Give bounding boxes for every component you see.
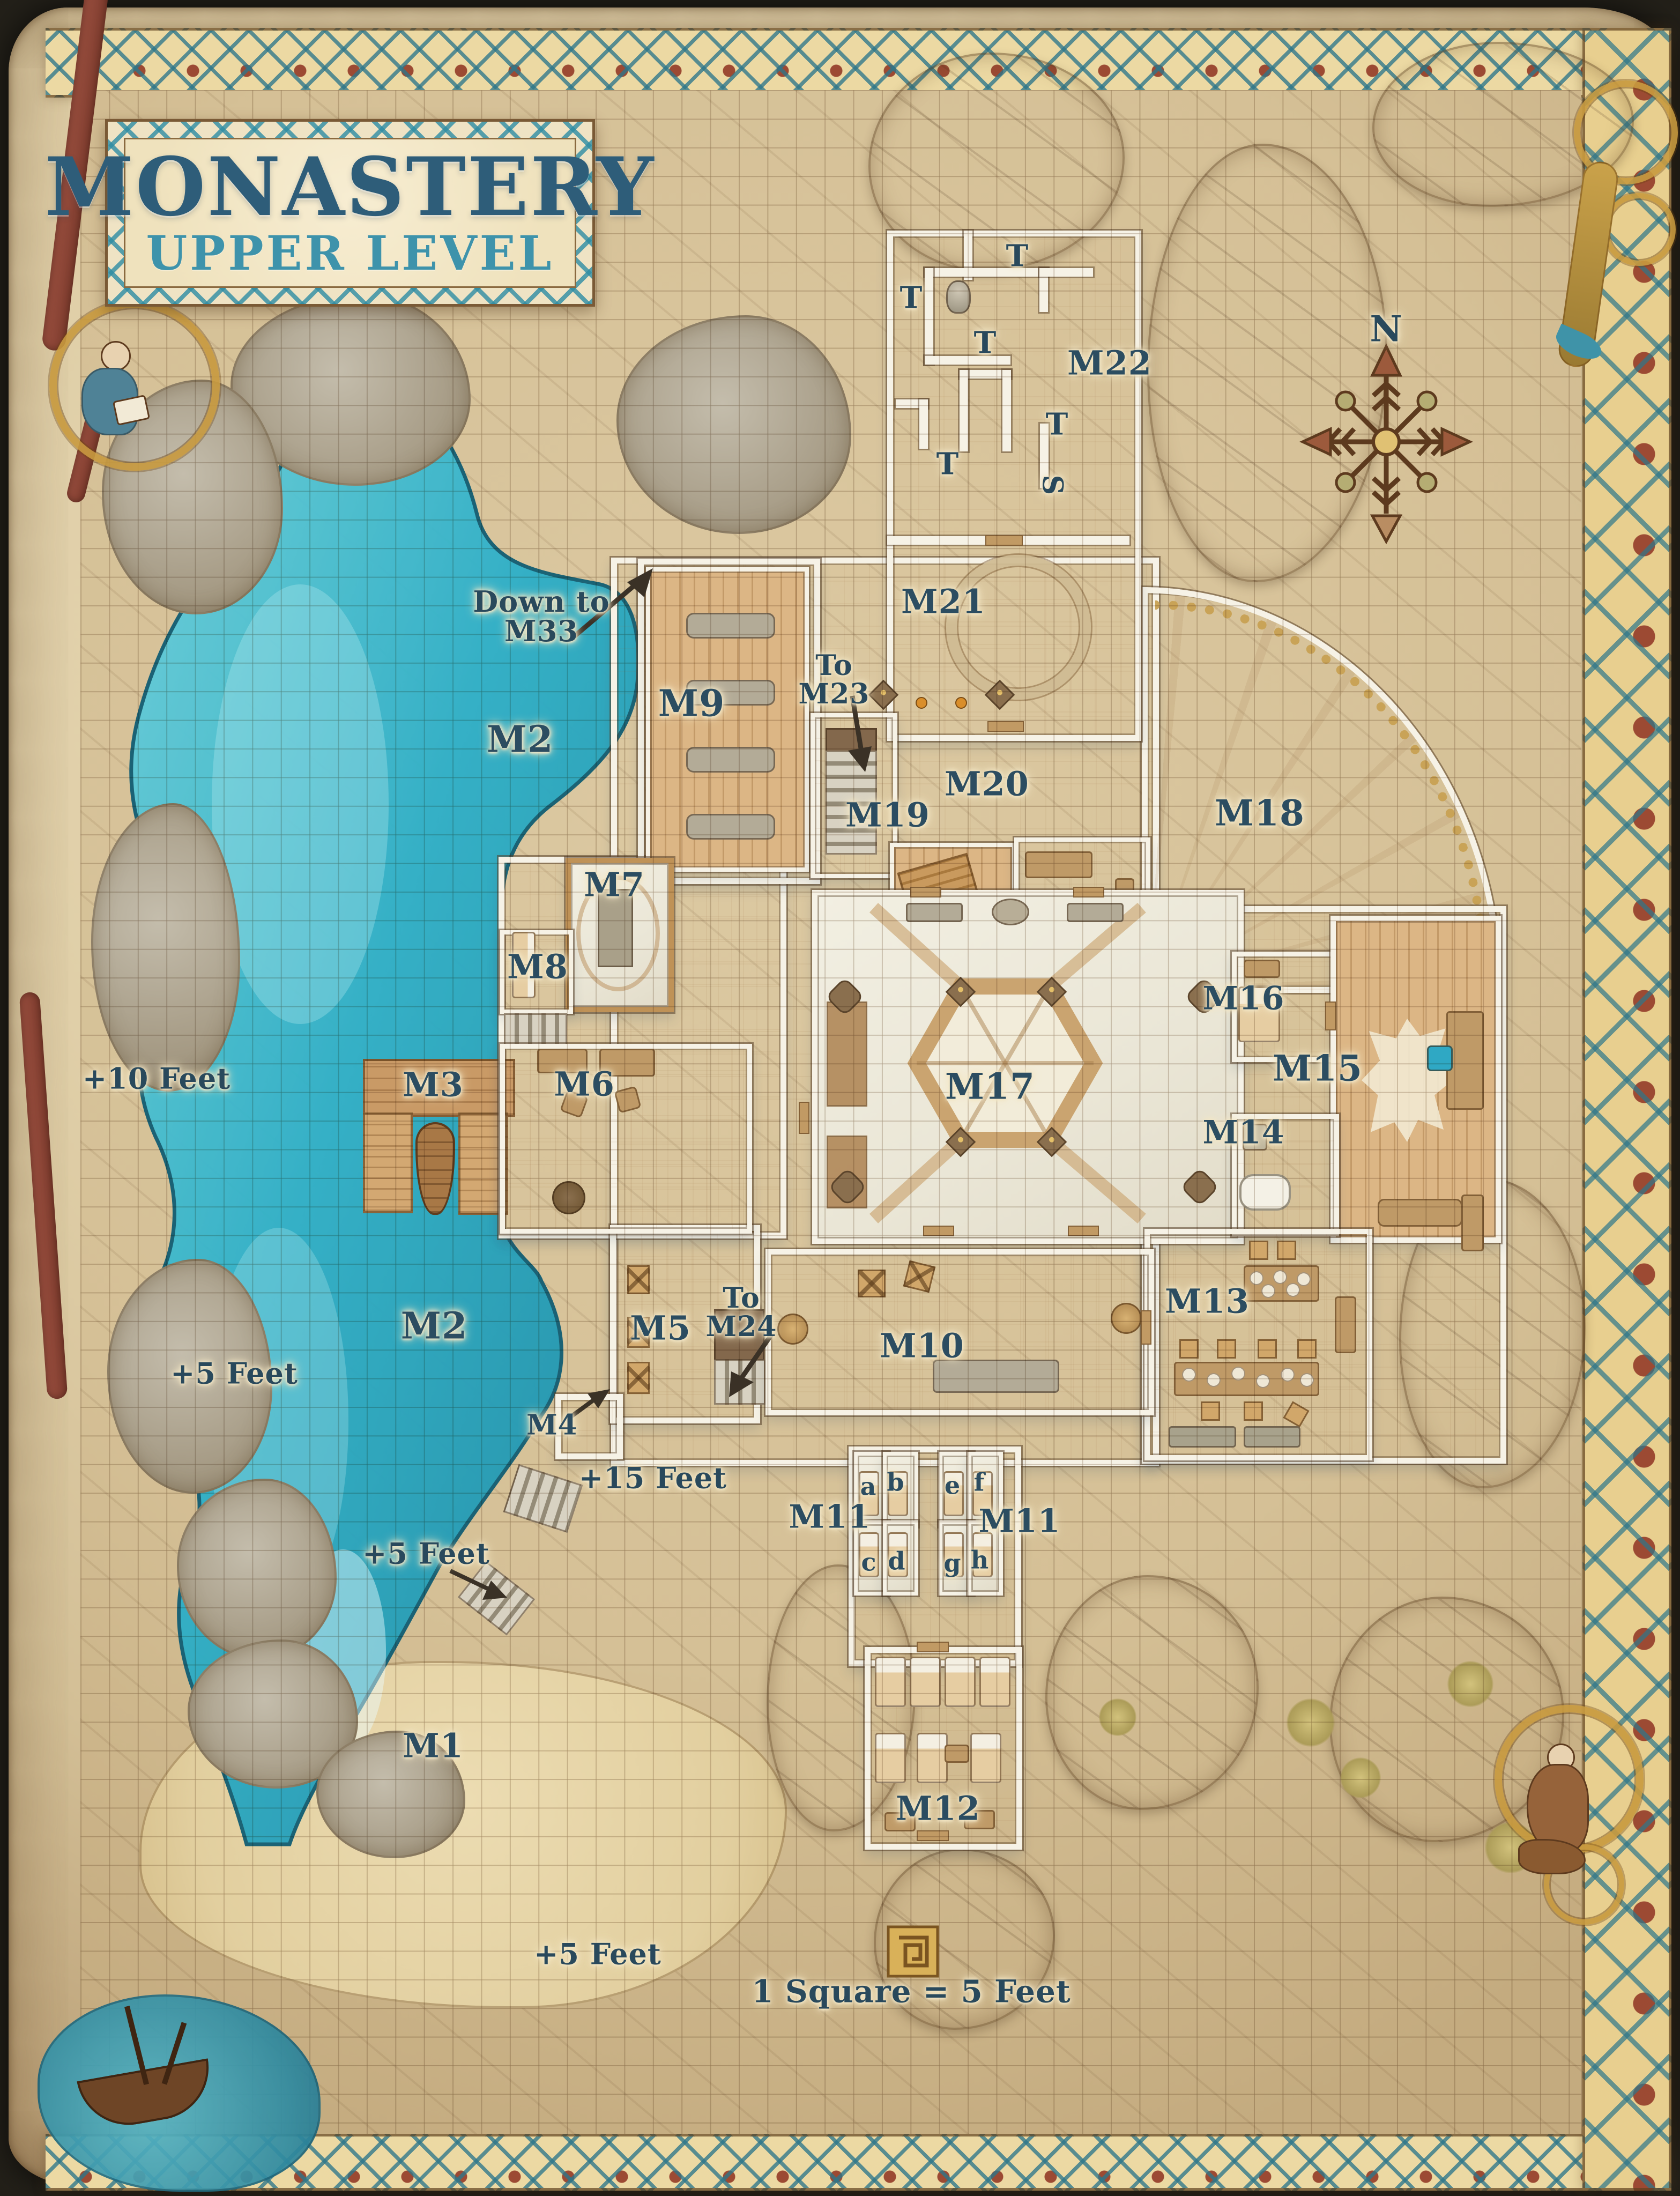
dining-table [1174,1362,1319,1396]
title-panel: Monastery Upper Level [105,119,595,307]
courtyard-paths [809,886,1238,1240]
map-field: M1M2M2M3M4M5M6M7M8M9M10M11M11M12M13M14M1… [80,90,1581,2134]
spiral-marker [887,1926,941,1979]
fountain [992,899,1029,925]
maze-wall [1039,268,1093,277]
bush [1340,1757,1381,1798]
bench [686,747,775,773]
bench [906,903,963,922]
bed [512,964,536,998]
candle [916,697,927,709]
bench [1067,903,1124,922]
monk-head [101,341,131,371]
bush [1287,1698,1335,1747]
bench [686,680,775,706]
bed [512,932,536,966]
chest [884,1812,916,1831]
statue [946,280,971,314]
candle [955,697,967,709]
maze-wall [925,356,1010,365]
arrow-to-m24 [713,1329,788,1409]
bush [1099,1698,1136,1736]
nightstand [945,1745,969,1763]
compass-rose [1297,337,1480,551]
maze-wall [1002,370,1011,451]
maze-wall [1040,424,1049,488]
altar [598,889,633,967]
chest [964,1810,995,1829]
dock-m3-pier-west [363,1112,413,1213]
table [1025,851,1092,878]
dining-table [1244,1265,1319,1302]
maze-wall [925,268,933,365]
dresser [1244,960,1280,978]
room-m8 [500,930,573,1014]
sideboard [1335,1296,1356,1353]
monastery-map-page: M1M2M2M3M4M5M6M7M8M9M10M11M11M12M13M14M1… [0,0,1680,2196]
map-subtitle: Upper Level [146,229,554,277]
brazier [552,1181,585,1214]
work-table [933,1360,1059,1393]
map-title: Monastery [45,149,656,226]
arrow-down-to-m33 [563,562,670,648]
couch [1378,1199,1462,1227]
stairs-dock [504,1013,567,1047]
bathtub [1239,1174,1291,1211]
washstand [1243,1124,1267,1151]
desk [537,1049,588,1073]
cabinet [1461,1195,1484,1251]
desk [599,1049,655,1077]
mosaic-circle-m21 [946,555,1091,700]
dock-m3-platform [363,1059,515,1117]
arrow-plus5-feet [445,1560,515,1608]
arrow-m4 [557,1385,616,1428]
maze-wall [925,268,1048,277]
maze-wall [960,370,968,451]
arrow-to-m23 [820,691,884,782]
bush [1447,1661,1493,1707]
door [985,535,1023,546]
bed [1238,986,1280,1042]
bench [686,613,775,639]
chair [1427,1045,1453,1071]
rug-runner [827,1001,867,1107]
pelt-rug [1362,1019,1453,1142]
bench [686,814,775,840]
maze-wall [919,399,928,449]
